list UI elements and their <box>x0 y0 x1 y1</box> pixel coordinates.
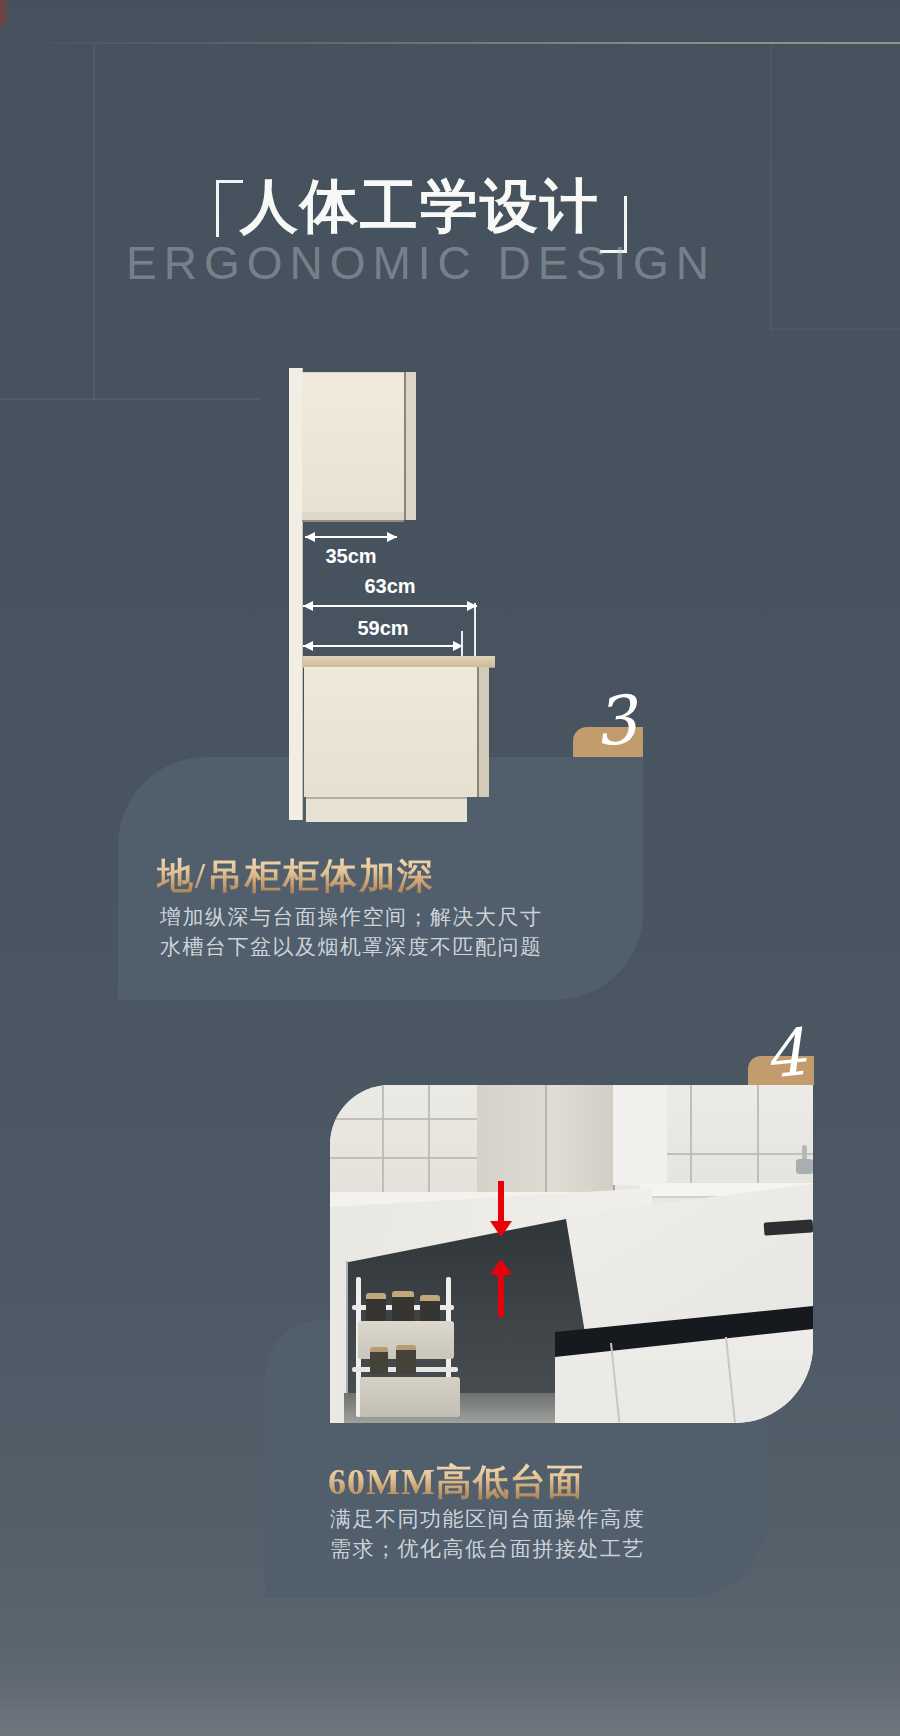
tile-grout-line <box>667 1153 813 1155</box>
bottom-light-band <box>0 1694 900 1736</box>
photo-tile-wall-left <box>330 1085 477 1195</box>
red-arrow-down <box>498 1181 504 1221</box>
faucet-icon <box>796 1159 813 1174</box>
tile-grout-line <box>690 1085 692 1185</box>
section-3-body-line2: 水槽台下盆以及烟机罩深度不匹配问题 <box>160 932 543 962</box>
dimension-tick-63cm <box>474 603 476 658</box>
section-3-body-line1: 增加纵深与台面操作空间；解决大尺寸 <box>160 902 543 932</box>
red-arrow-down-head-icon <box>490 1221 512 1237</box>
diagram-wall-cabinet-rail <box>302 512 404 522</box>
diagram-wall-cabinet-side <box>404 372 416 520</box>
promo-page: 人体工学设计 ERGONOMIC DESIGN 3 35cm 63cm 59cm… <box>0 0 900 1736</box>
diagram-base-cabinet <box>304 667 477 797</box>
red-arrow-up-head-icon <box>490 1259 512 1275</box>
photo-wall-white <box>613 1085 668 1185</box>
panel-seam-line <box>545 1085 547 1197</box>
corner-red-sliver <box>0 0 7 26</box>
red-arrow-up <box>498 1275 504 1317</box>
section-3-heading: 地/吊柜柜体加深 <box>157 852 435 901</box>
dimension-label-63cm: 63cm <box>340 575 440 598</box>
diagram-wall-cabinet <box>302 372 404 513</box>
section-4-body-line2: 需求；优化高低台面拼接处工艺 <box>330 1534 645 1564</box>
bg-tile-seam <box>770 328 900 330</box>
page-title: 人体工学设计 <box>235 168 605 246</box>
section-4-heading: 60MM高低台面 <box>328 1458 584 1507</box>
bg-tile-seam <box>0 398 260 400</box>
page-subtitle: ERGONOMIC DESIGN <box>0 236 842 290</box>
kitchen-photo <box>330 1085 813 1423</box>
section-3-body: 增加纵深与台面操作空间；解决大尺寸 水槽台下盆以及烟机罩深度不匹配问题 <box>160 902 543 962</box>
tile-grout-line <box>382 1085 384 1195</box>
tile-grout-line <box>757 1085 759 1185</box>
dimension-label-35cm: 35cm <box>301 545 401 568</box>
bg-tile-seam <box>93 44 95 400</box>
pullout-basket-bin <box>360 1377 460 1417</box>
photo-tile-wall-right <box>667 1085 813 1185</box>
tile-grout-line <box>330 1157 477 1159</box>
section-4-body: 满足不同功能区间台面操作高度 需求；优化高低台面拼接处工艺 <box>330 1504 645 1564</box>
diagram-wall-post <box>289 368 303 820</box>
tile-grout-line <box>428 1085 430 1195</box>
dimension-tick-59cm <box>461 631 463 658</box>
spice-jar <box>370 1347 388 1374</box>
dimension-arrow-59cm <box>303 645 463 647</box>
diagram-toe-kick <box>306 797 467 822</box>
section-number-4: 4 <box>747 1017 824 1092</box>
diagram-base-cabinet-side <box>477 667 489 797</box>
spice-jar <box>396 1345 416 1374</box>
tile-grout-line <box>330 1118 477 1120</box>
section-4-body-line1: 满足不同功能区间台面操作高度 <box>330 1504 645 1534</box>
dimension-arrow-35cm <box>305 536 397 538</box>
section-number-3: 3 <box>576 683 653 762</box>
dimension-label-59cm: 59cm <box>333 617 433 640</box>
dimension-arrow-63cm <box>303 605 477 607</box>
bg-tile-seam <box>0 42 900 44</box>
